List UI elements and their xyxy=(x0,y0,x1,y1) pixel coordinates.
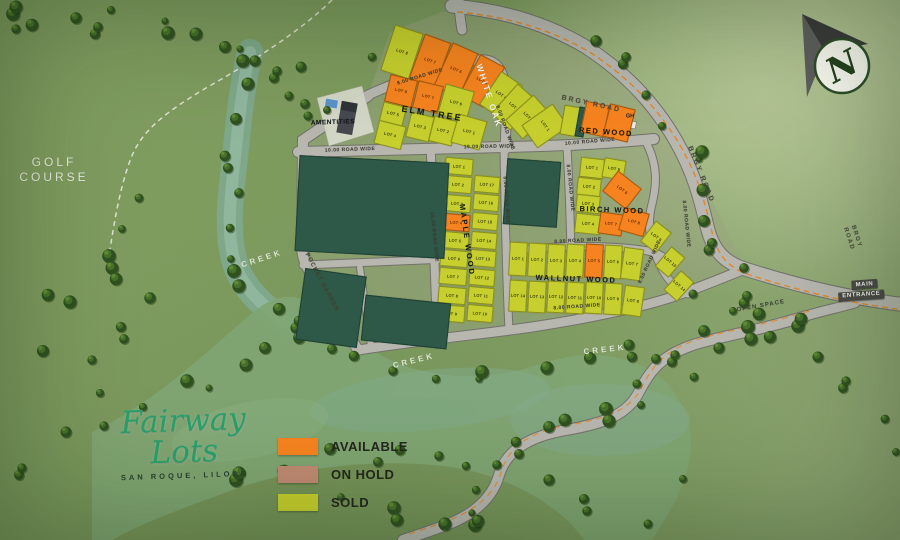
block-label-wallnut-wood: WALLNUT WOOD xyxy=(535,273,616,285)
pocket-garden-label: POCKET GARDEN xyxy=(302,252,339,314)
road-width-label-2: 8.00 ROAD WIDE xyxy=(494,105,516,152)
road-width-label-8: 8.00 ROAD WIDE xyxy=(564,164,575,212)
legend-label-on-hold: ON HOLD xyxy=(331,467,394,482)
road-width-label-4: 19.00 ROAD WIDE xyxy=(464,143,515,150)
project-logo: Fairway Lots SAN ROQUE, LILOAN xyxy=(87,403,281,484)
legend-swatch-sold xyxy=(278,494,318,511)
road-width-label-6: 16.00 ROAD WIDE xyxy=(428,212,440,263)
main-entrance-badge: MAIN ENTRANCE xyxy=(837,278,884,302)
legend-item-sold: SOLD xyxy=(278,494,408,511)
legend-item-available: AVAILABLE xyxy=(278,438,408,455)
site-map: LOT 8LOT 7LOT 6LOT 5LOT 4LOT 3LOT 2LOT 1… xyxy=(0,0,900,540)
block-label-maple-wood: MAPLE WOOD xyxy=(457,203,476,276)
road-width-label-9: 8.00 ROAD WIDE xyxy=(554,237,602,246)
road-width-label-10: 8.00 ROAD WIDE xyxy=(553,302,601,312)
amenities-label: AMENTITIES xyxy=(311,118,356,128)
road-width-label-12: 8.00 ROAD WIDE xyxy=(680,200,691,248)
legend-label-available: AVAILABLE xyxy=(331,439,408,454)
creek-label-3: CREEK xyxy=(583,343,627,357)
legend-label-sold: SOLD xyxy=(331,495,369,510)
road-width-label-11: 8.00 ROAD WIDE xyxy=(637,239,663,285)
block-label-white-oak: WHITE OAK xyxy=(474,63,505,130)
road-width-label-1: 8.00 ROAD WIDE xyxy=(396,67,443,87)
legend-swatch-on-hold xyxy=(278,466,318,483)
golf-course-label: GOLF COURSE xyxy=(19,155,88,185)
open-space-label: OPEN SPACE xyxy=(736,299,785,315)
brgy-road-label-3: BRGY ROAD xyxy=(837,213,866,263)
creek-label-2: CREEK xyxy=(392,351,436,371)
block-label-elm-tree: ELM TREE xyxy=(401,104,464,125)
block-label-red-wood: RED WOOD xyxy=(579,125,634,138)
road-width-label-7: 8.00 ROAD WIDE xyxy=(501,176,511,224)
legend-item-on-hold: ON HOLD xyxy=(278,466,408,483)
project-logo-name: Fairway Lots xyxy=(87,403,281,472)
main-entrance-line2: ENTRANCE xyxy=(838,289,885,301)
brgy-road-label-1: BRGY ROAD xyxy=(560,94,621,115)
legend: AVAILABLE ON HOLD SOLD xyxy=(278,438,408,522)
main-entrance-line1: MAIN xyxy=(851,279,877,290)
north-compass: N xyxy=(793,6,893,110)
legend-swatch-available xyxy=(278,438,318,455)
road-width-label-5: 10.00 ROAD WIDE xyxy=(565,137,616,148)
road-width-label-3: 10.00 ROAD WIDE xyxy=(325,146,376,154)
guard-house-label: GH xyxy=(626,114,634,121)
block-label-birch-wood: BIRCH WOOD xyxy=(579,204,644,216)
brgy-road-label-2: BRGY ROAD xyxy=(685,145,716,205)
creek-label-1: CREEK xyxy=(240,248,284,271)
